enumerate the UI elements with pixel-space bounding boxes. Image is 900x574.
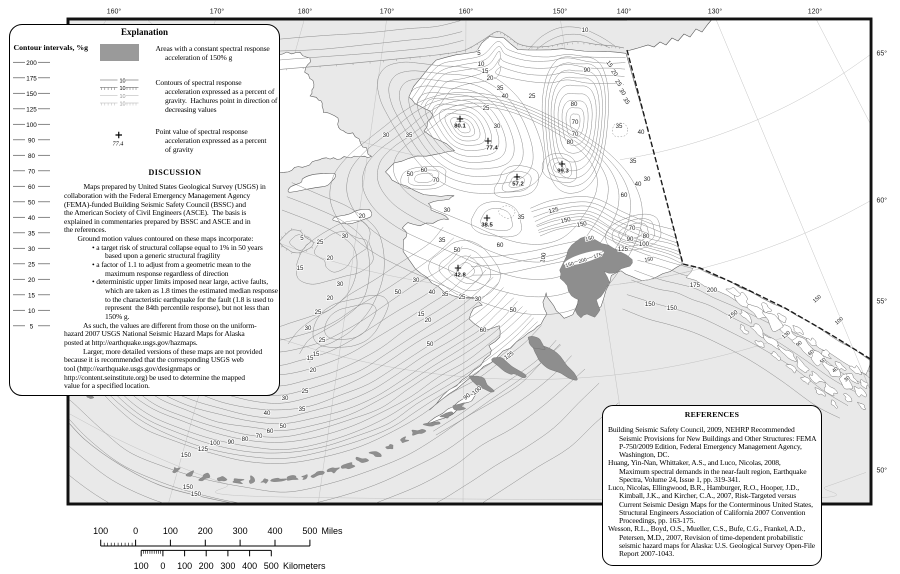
svg-text:40: 40	[638, 129, 645, 136]
svg-text:200: 200	[199, 561, 214, 571]
svg-text:77.4: 77.4	[113, 141, 124, 148]
svg-text:15: 15	[28, 292, 36, 299]
svg-text:15: 15	[482, 68, 489, 75]
svg-text:Kilometers: Kilometers	[283, 561, 326, 571]
svg-text:35: 35	[630, 158, 637, 165]
svg-text:30: 30	[383, 132, 390, 139]
svg-text:10: 10	[120, 94, 126, 100]
svg-text:30: 30	[337, 281, 344, 288]
svg-text:70: 70	[572, 119, 579, 126]
svg-text:70: 70	[572, 131, 579, 138]
svg-text:50: 50	[395, 289, 402, 296]
svg-text:30: 30	[644, 176, 651, 183]
svg-text:150: 150	[644, 256, 654, 263]
svg-text:160°: 160°	[107, 8, 122, 16]
svg-text:180°: 180°	[298, 8, 313, 16]
svg-text:10: 10	[582, 27, 589, 34]
svg-text:0: 0	[133, 526, 138, 536]
svg-text:38.5: 38.5	[481, 223, 493, 229]
svg-text:400: 400	[242, 561, 257, 571]
svg-text:25: 25	[319, 337, 326, 344]
svg-text:140°: 140°	[617, 8, 632, 16]
svg-text:60: 60	[497, 242, 504, 249]
svg-text:30: 30	[475, 296, 482, 303]
svg-text:20: 20	[327, 295, 334, 302]
svg-text:10: 10	[120, 79, 126, 85]
svg-text:60: 60	[28, 184, 36, 191]
svg-text:77.4: 77.4	[486, 146, 498, 152]
svg-text:25: 25	[529, 93, 536, 100]
svg-text:35: 35	[406, 132, 413, 139]
svg-text:400: 400	[267, 526, 282, 536]
svg-text:175: 175	[690, 282, 701, 289]
svg-text:35: 35	[442, 291, 449, 298]
svg-text:500: 500	[264, 561, 279, 571]
svg-text:35: 35	[28, 230, 36, 237]
svg-text:70: 70	[28, 168, 36, 175]
svg-text:10: 10	[120, 102, 126, 108]
svg-text:99.3: 99.3	[557, 169, 569, 175]
svg-text:42.8: 42.8	[454, 273, 466, 279]
svg-text:20: 20	[487, 75, 494, 82]
svg-text:25: 25	[317, 239, 324, 246]
svg-text:10: 10	[28, 308, 36, 315]
svg-text:90: 90	[28, 137, 36, 144]
svg-text:170°: 170°	[380, 8, 395, 16]
svg-text:80: 80	[28, 153, 36, 160]
svg-text:80: 80	[567, 139, 574, 146]
svg-text:30: 30	[444, 207, 451, 214]
svg-text:35: 35	[616, 123, 623, 130]
svg-text:60: 60	[480, 327, 487, 334]
svg-text:30: 30	[413, 277, 420, 284]
svg-text:80.1: 80.1	[454, 124, 466, 130]
svg-text:40: 40	[28, 215, 36, 222]
svg-text:150: 150	[183, 484, 194, 491]
svg-text:150: 150	[191, 491, 202, 498]
svg-text:Miles: Miles	[322, 526, 344, 536]
svg-text:15: 15	[313, 351, 320, 358]
svg-text:30: 30	[305, 325, 312, 332]
svg-text:15: 15	[297, 265, 304, 272]
svg-text:30: 30	[494, 123, 501, 130]
svg-text:40: 40	[635, 181, 642, 188]
svg-text:50: 50	[28, 199, 36, 206]
svg-text:100: 100	[26, 122, 37, 129]
svg-text:50: 50	[427, 341, 434, 348]
svg-text:100: 100	[639, 241, 650, 248]
svg-text:25: 25	[483, 105, 490, 112]
svg-text:65°: 65°	[877, 50, 888, 58]
svg-text:25: 25	[28, 261, 36, 268]
svg-text:150: 150	[667, 305, 678, 312]
svg-text:100: 100	[210, 440, 221, 447]
svg-text:170°: 170°	[210, 8, 225, 16]
svg-text:150: 150	[181, 452, 192, 459]
svg-text:80: 80	[242, 436, 249, 443]
svg-text:150°: 150°	[553, 8, 568, 16]
svg-text:200: 200	[198, 526, 213, 536]
svg-text:130°: 130°	[708, 8, 723, 16]
svg-text:20: 20	[310, 367, 317, 374]
svg-text:57.2: 57.2	[512, 182, 524, 188]
svg-text:300: 300	[220, 561, 235, 571]
svg-text:70: 70	[629, 225, 636, 232]
svg-text:60: 60	[421, 167, 428, 174]
svg-text:150: 150	[645, 301, 656, 308]
svg-text:60°: 60°	[877, 197, 888, 205]
svg-text:25: 25	[315, 309, 322, 316]
svg-text:55°: 55°	[877, 298, 888, 306]
svg-text:15: 15	[307, 355, 314, 362]
svg-text:40: 40	[502, 93, 509, 100]
svg-text:30: 30	[28, 246, 36, 253]
svg-text:100: 100	[163, 526, 178, 536]
svg-text:5: 5	[30, 323, 34, 330]
svg-text:50: 50	[510, 307, 517, 314]
svg-text:40: 40	[429, 289, 436, 296]
svg-text:100: 100	[93, 526, 108, 536]
svg-text:175: 175	[26, 75, 37, 82]
svg-text:100: 100	[177, 561, 192, 571]
svg-text:0: 0	[160, 561, 165, 571]
svg-text:120°: 120°	[808, 8, 823, 16]
svg-text:125: 125	[198, 446, 209, 453]
svg-text:125: 125	[618, 246, 629, 253]
svg-text:80: 80	[643, 233, 650, 240]
svg-text:500: 500	[302, 526, 317, 536]
svg-text:25: 25	[459, 294, 466, 301]
svg-text:35: 35	[497, 85, 504, 92]
svg-text:60: 60	[621, 192, 628, 199]
svg-text:80: 80	[571, 101, 578, 108]
svg-text:50: 50	[407, 171, 414, 178]
svg-text:10: 10	[478, 61, 485, 68]
svg-text:20: 20	[327, 255, 334, 262]
svg-text:30: 30	[282, 395, 289, 402]
svg-text:200: 200	[26, 60, 37, 67]
svg-text:35: 35	[439, 237, 446, 244]
svg-text:150: 150	[26, 91, 37, 98]
svg-text:160°: 160°	[459, 8, 474, 16]
svg-text:125: 125	[26, 106, 37, 113]
svg-text:50: 50	[454, 247, 461, 254]
svg-text:60: 60	[267, 428, 274, 435]
svg-text:50: 50	[280, 423, 287, 430]
svg-text:100: 100	[134, 561, 149, 571]
svg-text:90: 90	[228, 439, 235, 446]
svg-text:20: 20	[425, 317, 432, 324]
svg-text:70: 70	[433, 177, 440, 184]
svg-text:25: 25	[302, 388, 309, 395]
svg-text:70: 70	[256, 433, 263, 440]
svg-text:30: 30	[342, 233, 349, 240]
svg-text:10: 10	[120, 86, 126, 92]
svg-text:90: 90	[584, 67, 591, 74]
svg-text:50°: 50°	[877, 467, 888, 475]
svg-text:35: 35	[299, 406, 306, 413]
svg-text:20: 20	[28, 277, 36, 284]
svg-text:40: 40	[264, 410, 271, 417]
svg-text:200: 200	[707, 287, 718, 294]
svg-text:35: 35	[518, 214, 525, 221]
svg-text:300: 300	[233, 526, 248, 536]
svg-text:90: 90	[627, 236, 634, 243]
svg-text:20: 20	[359, 213, 366, 220]
